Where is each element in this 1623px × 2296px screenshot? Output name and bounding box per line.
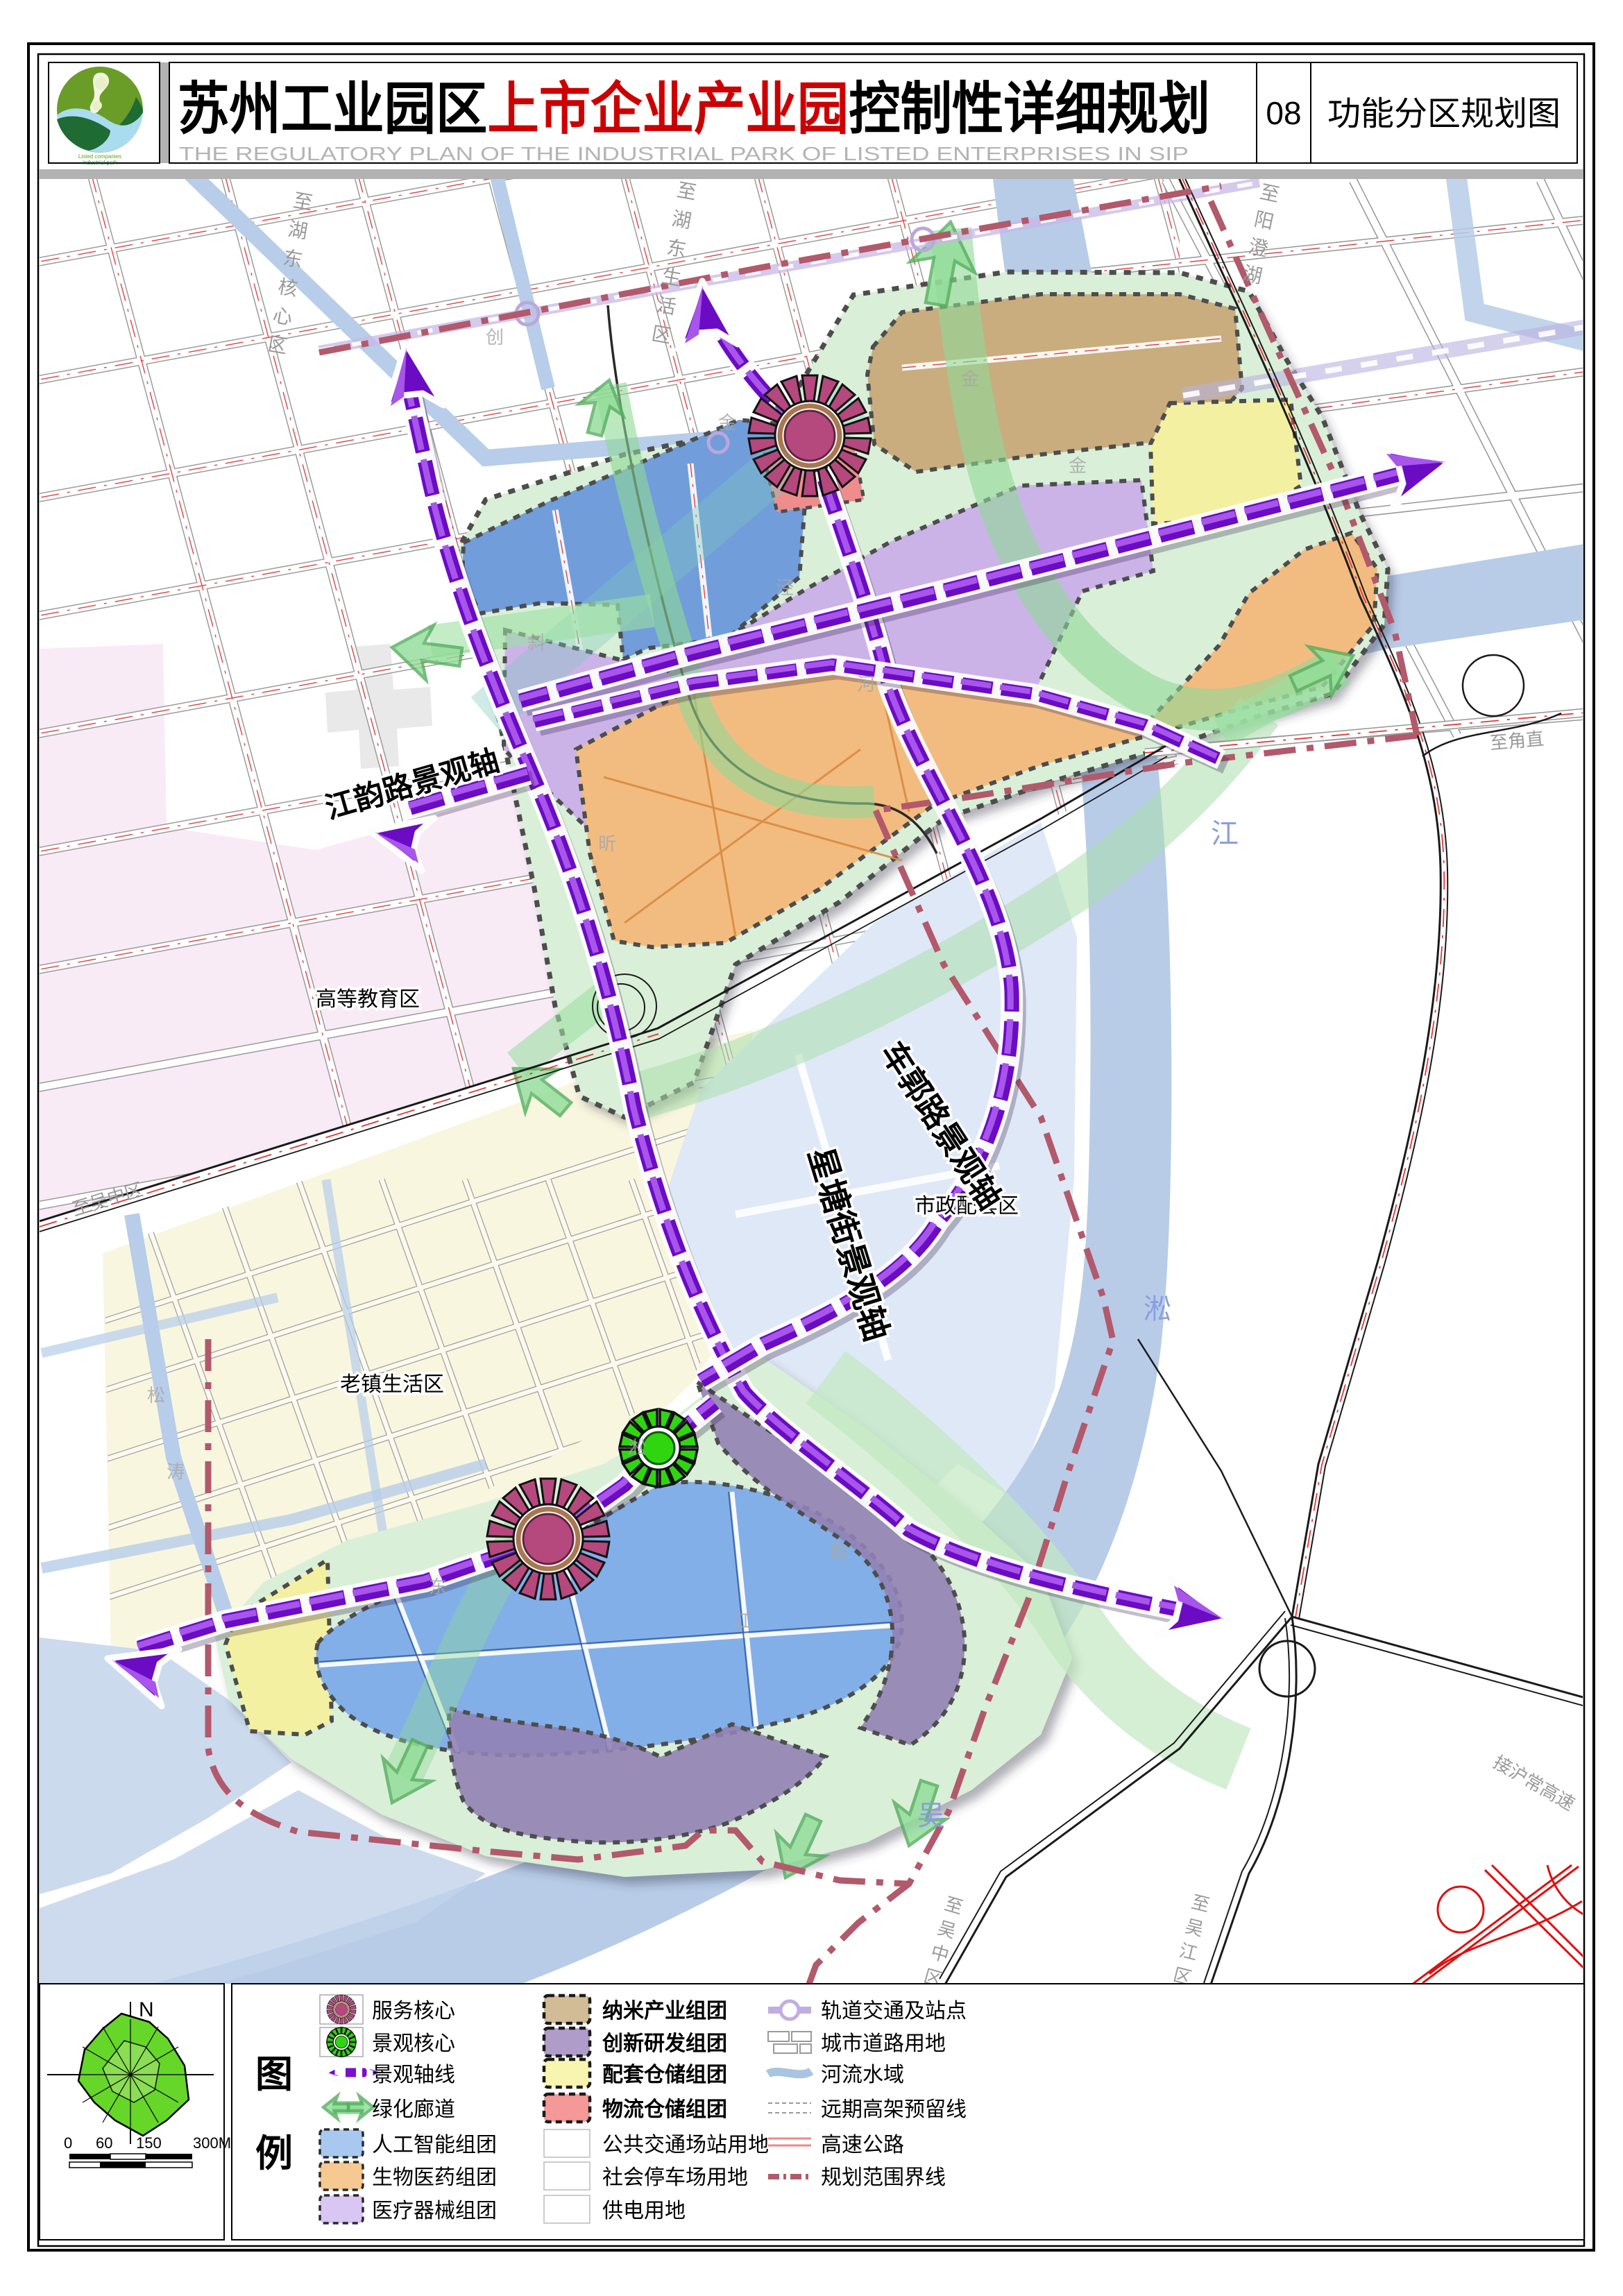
- svg-text:淞: 淞: [1144, 1294, 1171, 1325]
- svg-text:河: 河: [857, 674, 875, 695]
- svg-text:吴: 吴: [917, 1801, 945, 1831]
- svg-text:配套仓储组团: 配套仓储组团: [602, 2063, 727, 2086]
- svg-text:高速公路: 高速公路: [821, 2134, 904, 2157]
- svg-text:心: 心: [271, 304, 294, 328]
- svg-text:社会停车场用地: 社会停车场用地: [602, 2166, 748, 2189]
- svg-text:淞: 淞: [628, 1437, 646, 1458]
- svg-text:斜: 斜: [527, 632, 545, 653]
- svg-text:功能分区规划图: 功能分区规划图: [1327, 96, 1561, 133]
- svg-text:industrial park: industrial park: [83, 160, 118, 166]
- svg-text:东: 东: [665, 237, 688, 261]
- svg-text:生: 生: [660, 265, 683, 289]
- svg-text:区: 区: [266, 333, 289, 357]
- svg-text:昕: 昕: [598, 833, 616, 854]
- svg-text:THE REGULATORY PLAN OF THE IND: THE REGULATORY PLAN OF THE INDUSTRIAL PA…: [179, 143, 1189, 164]
- svg-text:纳米产业组团: 纳米产业组团: [602, 1999, 727, 2023]
- svg-text:图: 图: [255, 2054, 293, 2095]
- svg-text:路: 路: [830, 1542, 848, 1563]
- svg-text:核: 核: [276, 275, 299, 300]
- svg-text:湖: 湖: [287, 218, 309, 242]
- svg-text:湖: 湖: [670, 207, 693, 232]
- svg-text:创新研发组团: 创新研发组团: [602, 2032, 727, 2055]
- svg-text:区: 区: [650, 323, 673, 347]
- svg-text:例: 例: [255, 2133, 293, 2175]
- svg-text:0: 0: [64, 2134, 72, 2152]
- svg-text:老镇生活区: 老镇生活区: [340, 1373, 444, 1396]
- svg-text:服务核心: 服务核心: [372, 2000, 455, 2023]
- svg-text:景观轴线: 景观轴线: [372, 2064, 455, 2086]
- svg-text:涛: 涛: [167, 1461, 185, 1482]
- svg-text:河流水域: 河流水域: [821, 2064, 904, 2086]
- svg-text:江: 江: [734, 1610, 752, 1631]
- svg-text:人工智能组团: 人工智能组团: [372, 2134, 497, 2157]
- svg-text:高等教育区: 高等教育区: [316, 988, 420, 1011]
- svg-text:08: 08: [1266, 95, 1301, 131]
- svg-text:松: 松: [147, 1385, 165, 1406]
- svg-text:苏州工业园区上市企业产业园控制性详细规划: 苏州工业园区上市企业产业园控制性详细规划: [178, 78, 1210, 141]
- svg-text:供电用地: 供电用地: [602, 2200, 686, 2222]
- svg-text:轨道交通及站点: 轨道交通及站点: [821, 2000, 967, 2023]
- svg-text:泾: 泾: [776, 577, 794, 598]
- svg-text:医疗器械组团: 医疗器械组团: [372, 2200, 497, 2222]
- svg-text:创: 创: [486, 327, 504, 348]
- svg-text:至: 至: [675, 179, 698, 203]
- svg-text:绿化廊道: 绿化廊道: [372, 2098, 455, 2121]
- svg-text:至: 至: [291, 189, 314, 214]
- svg-text:公共交通场站用地: 公共交通场站用地: [602, 2134, 769, 2157]
- svg-text:金: 金: [1069, 455, 1087, 476]
- svg-text:东: 东: [282, 247, 305, 271]
- svg-text:活: 活: [655, 294, 678, 318]
- svg-text:金: 金: [718, 412, 736, 433]
- svg-text:规划范围界线: 规划范围界线: [821, 2166, 946, 2189]
- svg-text:景观核心: 景观核心: [372, 2032, 455, 2055]
- svg-text:东: 东: [429, 1576, 447, 1597]
- svg-text:150: 150: [136, 2134, 162, 2152]
- svg-text:城市道路用地: 城市道路用地: [821, 2032, 946, 2055]
- svg-text:金: 金: [961, 368, 979, 389]
- svg-text:江: 江: [1211, 819, 1239, 849]
- svg-text:60: 60: [96, 2134, 112, 2152]
- svg-text:300M: 300M: [193, 2134, 231, 2152]
- svg-text:物流仓储组团: 物流仓储组团: [602, 2098, 727, 2121]
- svg-text:N: N: [139, 1998, 154, 2021]
- svg-text:生物医药组团: 生物医药组团: [372, 2166, 497, 2189]
- svg-text:远期高架预留线: 远期高架预留线: [821, 2098, 967, 2121]
- svg-text:Listed companies: Listed companies: [78, 153, 121, 160]
